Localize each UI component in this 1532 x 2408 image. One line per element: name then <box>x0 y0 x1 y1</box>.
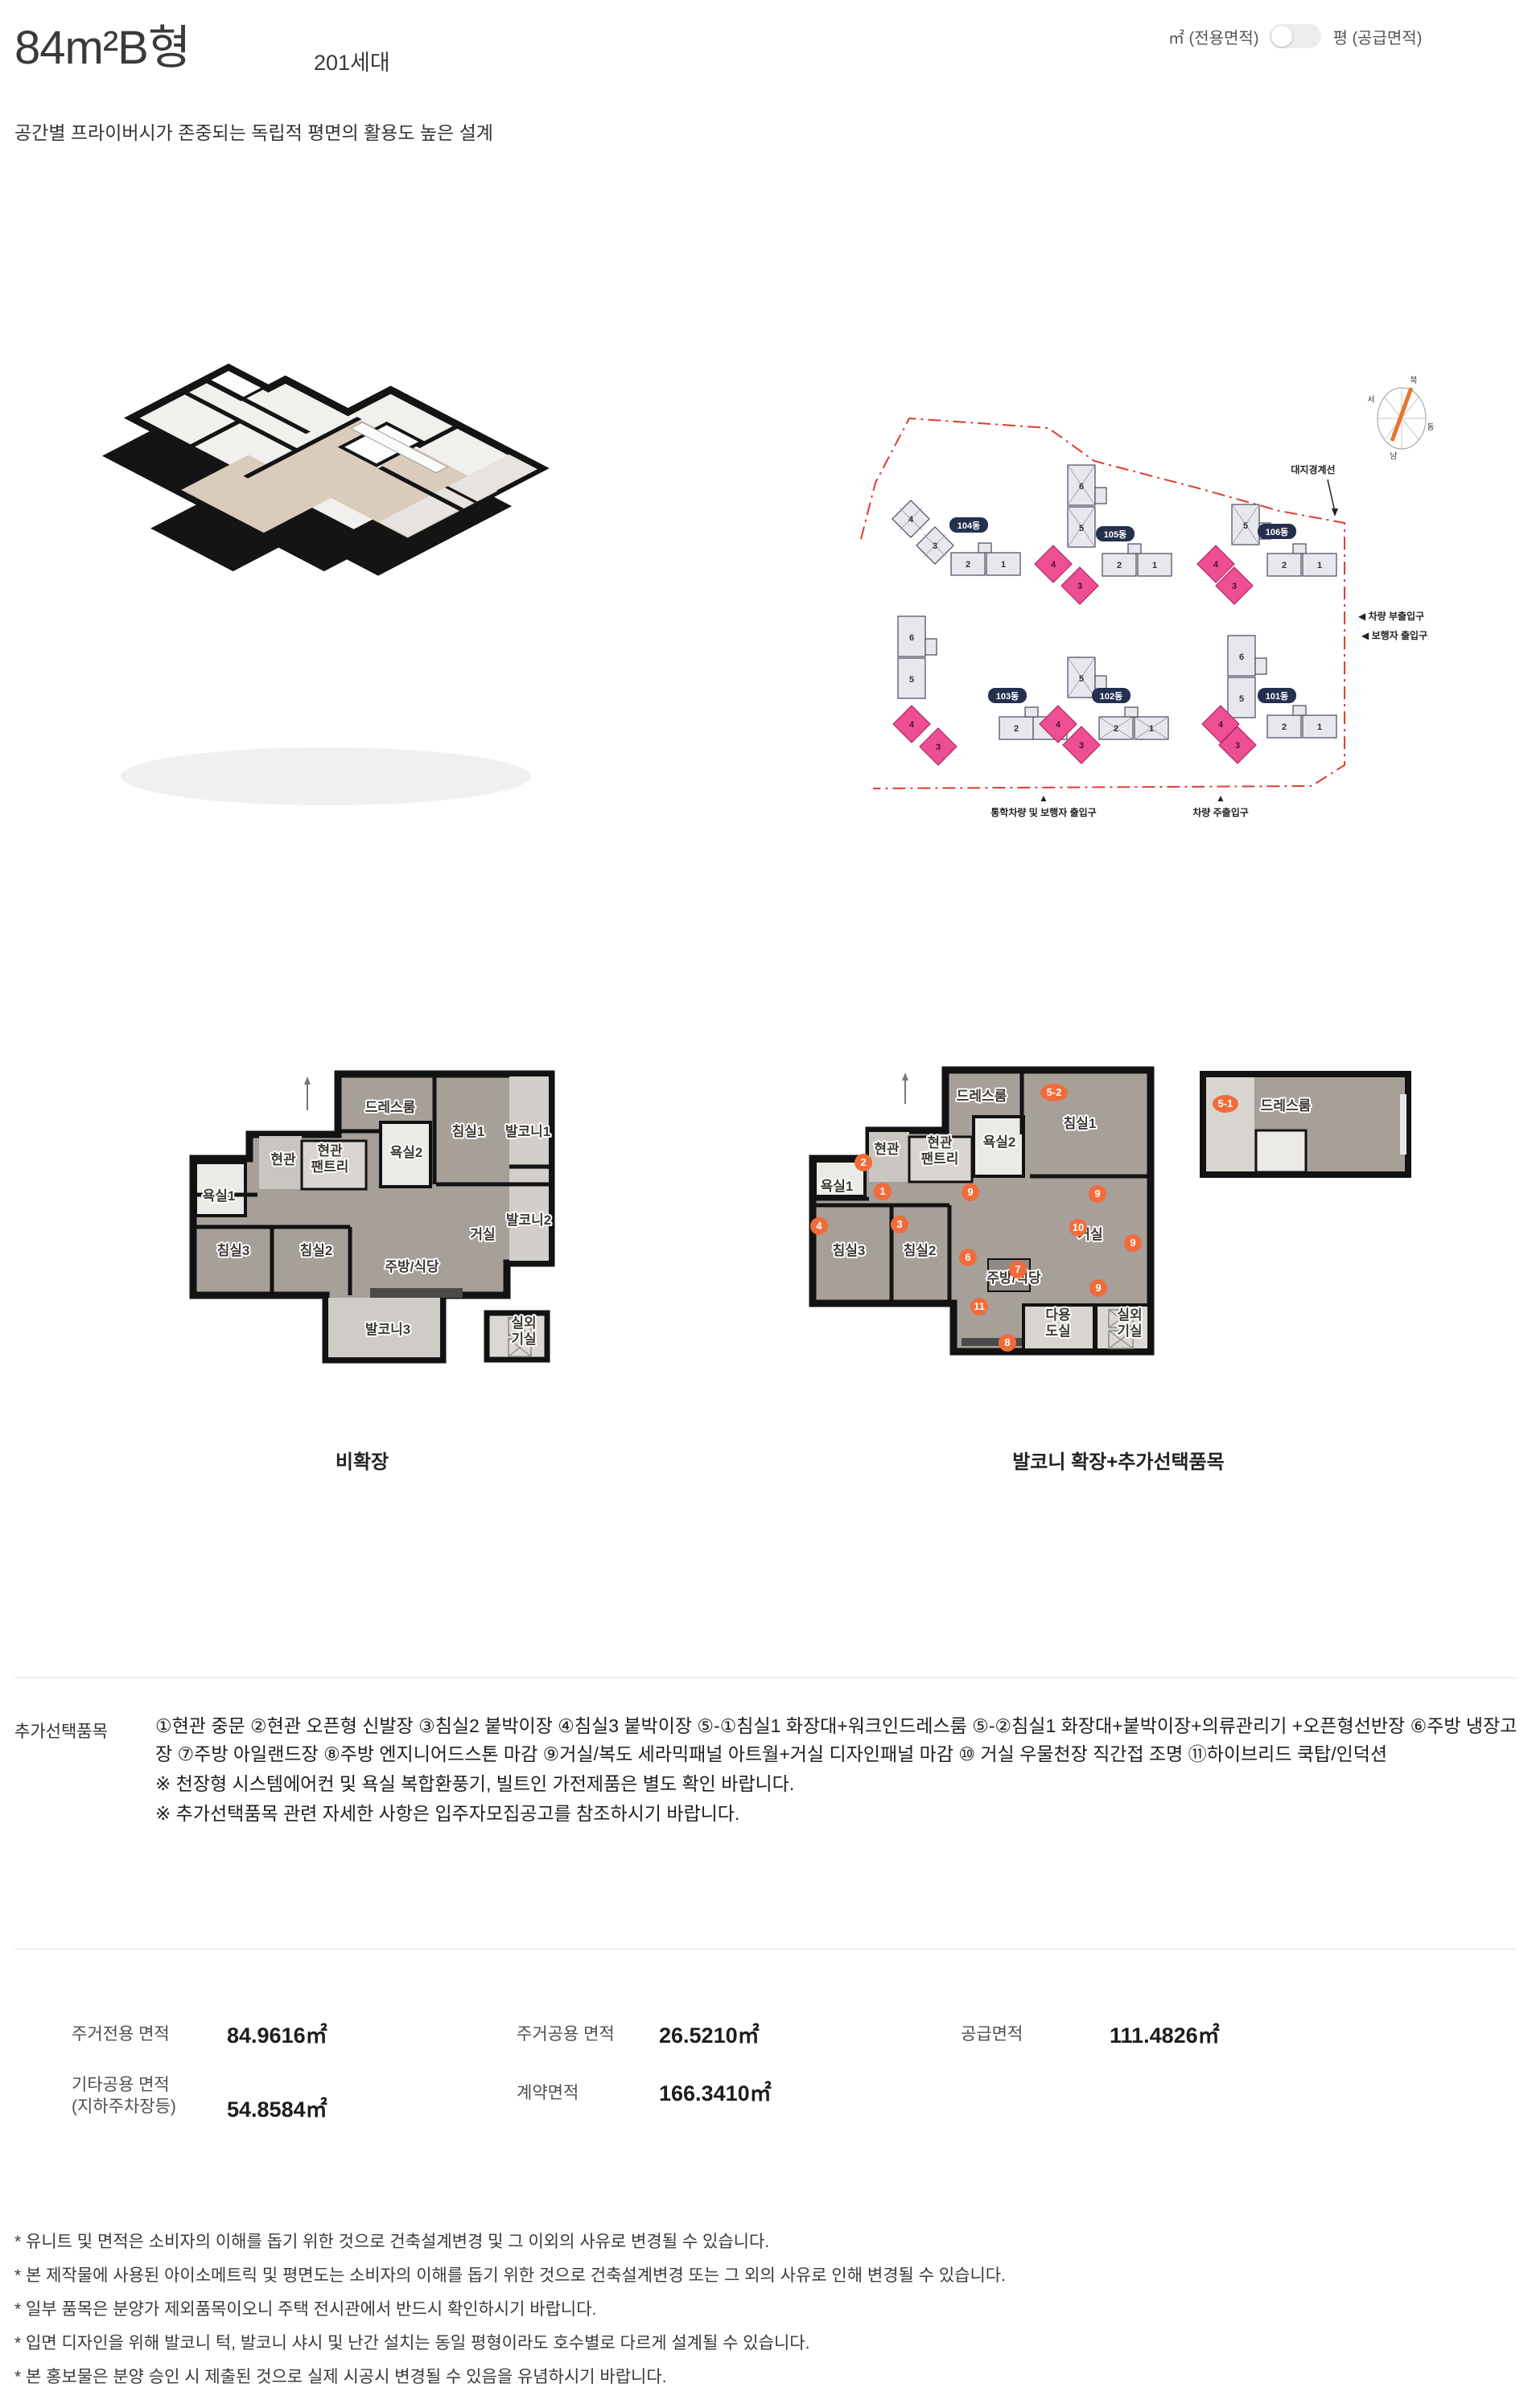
svg-text:남: 남 <box>1390 451 1397 461</box>
unit-toggle-switch[interactable] <box>1270 24 1321 48</box>
svg-text:4: 4 <box>1051 560 1056 570</box>
room-label: 욕실1 <box>821 1179 854 1194</box>
svg-text:1: 1 <box>879 1185 885 1197</box>
building-cluster: 54321106동 <box>1197 504 1336 604</box>
footnote: * 본 제작물에 사용된 아이소메트릭 및 평면도는 소비자의 이해를 돕기 위… <box>14 2259 1006 2293</box>
room-label: 드레스룸 <box>1261 1098 1312 1113</box>
room-label: 주방/식당 <box>385 1259 439 1274</box>
svg-text:3: 3 <box>936 743 941 752</box>
svg-text:104동: 104동 <box>957 521 980 531</box>
room-label: 침실3 <box>833 1242 866 1258</box>
floorplan-page: { "header": { "title": "84m²B형", "units_… <box>0 0 1532 2408</box>
page-subtitle: 공간별 프라이버시가 존중되는 독립적 평면의 활용도 높은 설계 <box>14 117 493 145</box>
footnotes: * 유니트 및 면적은 소비자의 이해를 돕기 위한 것으로 건축설계변경 및 … <box>14 2225 1006 2394</box>
room-label: 현관 <box>874 1142 900 1157</box>
area-value: 111.4826㎡ <box>1110 2018 1220 2049</box>
svg-text:2: 2 <box>1014 724 1019 734</box>
room-label: 다용도실 <box>1045 1307 1071 1339</box>
svg-text:9: 9 <box>1095 1282 1101 1294</box>
svg-text:5-1: 5-1 <box>1218 1097 1233 1109</box>
svg-text:3: 3 <box>896 1218 902 1230</box>
svg-text:101동: 101동 <box>1266 691 1288 702</box>
svg-text:9: 9 <box>1130 1237 1135 1249</box>
room-label: 침실3 <box>217 1242 250 1258</box>
building-cluster: 654321105동 <box>1035 465 1172 604</box>
section-divider <box>14 1949 1518 1949</box>
svg-text:5: 5 <box>1079 674 1084 684</box>
svg-text:5: 5 <box>909 675 914 685</box>
room-label: 드레스룸 <box>365 1100 416 1115</box>
room-label: 현관 <box>270 1152 296 1167</box>
room-label: 실외기실 <box>511 1315 536 1347</box>
svg-text:동: 동 <box>1427 422 1434 432</box>
svg-text:5: 5 <box>1243 521 1248 531</box>
section-divider <box>14 1677 1518 1678</box>
boundary-label: 대지경계선 <box>1291 463 1335 475</box>
options-items-text: ①현관 중문 ②현관 오픈형 신발장 ③침실2 붙박이장 ④침실3 붙박이장 ⑤… <box>155 1712 1523 1768</box>
svg-text:1: 1 <box>1317 722 1322 732</box>
svg-text:11: 11 <box>974 1300 985 1312</box>
svg-text:6: 6 <box>1079 482 1084 492</box>
floorplan-fragment-dressroom: 5-1 드레스룸 <box>1203 1074 1408 1175</box>
options-section-label: 추가선택품목 <box>14 1719 108 1743</box>
svg-text:1: 1 <box>1317 561 1322 570</box>
options-note: ※ 추가선택품목 관련 자세한 사항은 입주자모집공고를 참조하시기 바랍니다. <box>155 1800 1523 1828</box>
entrance-car-main-label: 차량 주출입구 <box>1192 806 1249 818</box>
svg-text:106동: 106동 <box>1266 527 1288 537</box>
svg-text:103동: 103동 <box>996 691 1019 702</box>
svg-text:1: 1 <box>1152 561 1157 570</box>
building-cluster: 54321102동 <box>1040 657 1168 764</box>
page-title: 84m²B형 <box>14 10 190 77</box>
building-cluster: 654321103동 <box>893 616 1067 765</box>
svg-text:9: 9 <box>1094 1188 1100 1200</box>
svg-text:7: 7 <box>1015 1263 1020 1275</box>
svg-text:2: 2 <box>1117 561 1122 570</box>
area-value: 166.3410㎡ <box>659 2076 772 2107</box>
room-label: 욕실2 <box>390 1145 423 1160</box>
room-label: 침실2 <box>904 1242 937 1258</box>
svg-text:6: 6 <box>1239 652 1244 662</box>
area-value: 54.8584㎡ <box>227 2092 327 2123</box>
svg-text:북: 북 <box>1410 376 1417 385</box>
room-label: 발코니1 <box>505 1124 550 1139</box>
site-plan-image: 북 서 동 남 대지경계선 ◀ 차량 부출입구 ◀ 보행자 출입구 ▲ 통학차량… <box>821 370 1464 841</box>
svg-text:2: 2 <box>1282 722 1287 732</box>
toggle-label-pyeong: 평 (공급면적) <box>1332 25 1422 48</box>
building-cluster: 654321101동 <box>1202 636 1336 764</box>
room-label: 침실1 <box>452 1123 485 1139</box>
units-count: 201세대 <box>314 45 390 76</box>
svg-text:8: 8 <box>1004 1336 1010 1348</box>
svg-text:3: 3 <box>1235 741 1240 751</box>
svg-text:1: 1 <box>1001 560 1006 570</box>
entrance-school-label: 통학차량 및 보행자 출입구 <box>990 806 1096 818</box>
footnote: * 유니트 및 면적은 소비자의 이해를 돕기 위한 것으로 건축설계변경 및 … <box>14 2225 1006 2259</box>
entrance-car-sub-label: ◀ 차량 부출입구 <box>1358 610 1424 622</box>
footnote: * 일부 품목은 분양가 제외품목이오니 주택 전시관에서 반드시 확인하시기 … <box>14 2293 1006 2327</box>
isometric-3d-floorplan-image <box>68 338 591 857</box>
svg-text:3: 3 <box>1079 741 1084 751</box>
area-label: 주거공용 면적 <box>517 2023 615 2045</box>
svg-text:5: 5 <box>1079 524 1084 533</box>
room-label: 발코니2 <box>506 1212 551 1228</box>
options-text-block: ①현관 중문 ②현관 오픈형 신발장 ③침실2 붙박이장 ④침실3 붙박이장 ⑤… <box>155 1712 1523 1828</box>
room-label: 드레스룸 <box>957 1089 1007 1104</box>
area-value: 26.5210㎡ <box>659 2018 760 2049</box>
room-label: 발코니3 <box>365 1322 410 1337</box>
svg-text:4: 4 <box>816 1220 822 1232</box>
room-label: 욕실1 <box>203 1188 236 1204</box>
floorplan-nonexpanded-image: 드레스룸침실1발코니1욕실2현관현관팬트리욕실1침실3침실2거실발코니2주방/식… <box>169 1062 555 1380</box>
svg-text:2: 2 <box>966 560 970 570</box>
svg-text:10: 10 <box>1073 1221 1084 1233</box>
svg-text:4: 4 <box>1213 560 1219 570</box>
building-cluster: 4321104동 <box>892 500 1020 575</box>
caption-expanded: 발코니 확장+추가선택품목 <box>845 1446 1392 1474</box>
room-label: 실외기실 <box>1117 1307 1142 1339</box>
area-label: 공급면적 <box>961 2023 1023 2045</box>
area-label: 기타공용 면적 (지하주차장등) <box>72 2074 176 2118</box>
svg-text:5: 5 <box>1239 694 1244 704</box>
room-label: 침실1 <box>1064 1115 1097 1131</box>
room-label: 침실2 <box>300 1242 333 1258</box>
svg-text:5-2: 5-2 <box>1047 1086 1062 1098</box>
svg-text:▲: ▲ <box>1039 792 1048 804</box>
area-label: 주거전용 면적 <box>72 2023 170 2045</box>
caption-nonexpanded: 비확장 <box>169 1446 555 1474</box>
svg-text:4: 4 <box>909 720 915 730</box>
room-label: 욕실2 <box>983 1134 1016 1150</box>
svg-text:6: 6 <box>965 1251 970 1263</box>
svg-text:4: 4 <box>1218 720 1224 730</box>
toggle-knob <box>1271 26 1292 47</box>
svg-text:3: 3 <box>1077 582 1082 591</box>
area-value: 84.9616㎡ <box>227 2018 327 2049</box>
svg-text:1: 1 <box>1149 724 1154 734</box>
svg-text:서: 서 <box>1367 395 1374 405</box>
svg-text:3: 3 <box>933 541 937 551</box>
area-label: 계약면적 <box>517 2082 579 2104</box>
svg-text:2: 2 <box>1282 561 1287 570</box>
svg-text:2: 2 <box>1114 724 1118 734</box>
options-note: ※ 천장형 시스템에어컨 및 욕실 복합환풍기, 빌트인 가전제품은 별도 확인… <box>155 1770 1523 1798</box>
svg-text:2: 2 <box>860 1156 866 1168</box>
svg-text:9: 9 <box>967 1186 973 1198</box>
svg-text:▲: ▲ <box>1216 792 1225 804</box>
footnote: * 본 홍보물은 분양 승인 시 제출된 것으로 실제 시공시 변경될 수 있음… <box>14 2361 1006 2394</box>
svg-text:4: 4 <box>908 515 914 525</box>
unit-toggle-group: ㎡ (전용면적) 평 (공급면적) <box>1168 24 1422 48</box>
svg-text:3: 3 <box>1232 582 1237 591</box>
footnote: * 입면 디자인을 위해 발코니 턱, 발코니 샤시 및 난간 설치는 동일 평… <box>14 2327 1006 2361</box>
room-label: 거실 <box>470 1227 495 1242</box>
entrance-pedestrian-label: ◀ 보행자 출입구 <box>1361 629 1427 641</box>
floorplan-expanded-image: 5-1 드레스룸 드레스룸침실1욕실2현관현관팬트리욕실1침실3침실2거실주방/… <box>789 1054 1440 1380</box>
svg-text:102동: 102동 <box>1100 691 1122 702</box>
svg-text:4: 4 <box>1056 720 1061 730</box>
svg-text:105동: 105동 <box>1104 529 1126 540</box>
compass-icon: 북 서 동 남 <box>1367 376 1434 461</box>
toggle-label-m2: ㎡ (전용면적) <box>1168 25 1258 48</box>
svg-text:6: 6 <box>909 633 914 643</box>
